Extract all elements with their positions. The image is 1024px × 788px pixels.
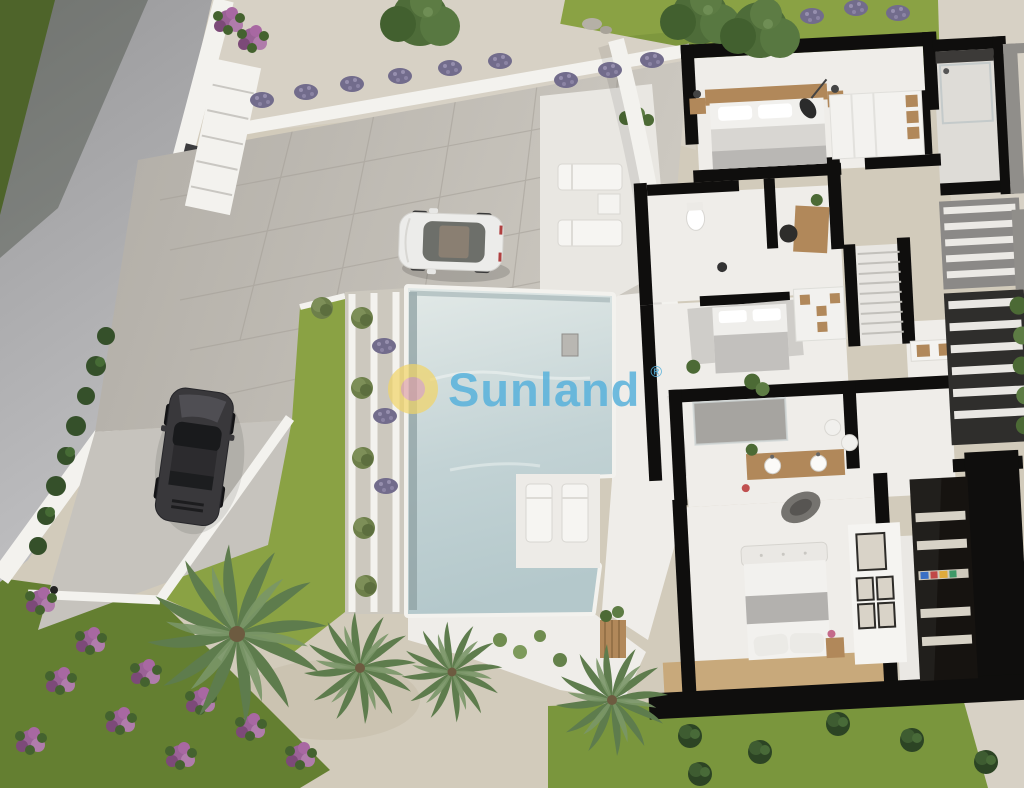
side-table [598,194,620,214]
olive-shrub [311,297,333,319]
car-mirror [427,269,436,274]
car-mirror [161,425,170,432]
open-shelf [916,344,930,357]
shower-pan [693,398,787,445]
walk-in-closet [910,477,978,682]
lavender-bush [438,60,462,76]
watermark-brand-text: Sunland [448,366,640,413]
outdoor-shower-panel [562,334,578,356]
white-car [398,207,512,284]
wardrobe-cubby [905,95,918,108]
stool [824,419,841,436]
sun-lounger [558,164,622,190]
lavender-bush [886,5,910,21]
lavender-bush [294,84,318,100]
rock [600,26,612,34]
render-canvas: Sunland ® [0,0,1024,788]
picture-frame [878,603,895,628]
pool-lounger-platform [516,474,600,568]
book [920,572,928,579]
picture-frame [877,577,894,600]
book [939,571,947,578]
shelf-cubby [830,293,841,304]
shelf-cubby [816,306,827,317]
wardrobe-cubby [906,111,919,124]
olive-shrub [352,447,374,469]
book [949,570,956,577]
lavender-bush [372,338,396,354]
pillow [753,633,789,657]
sink [764,457,781,474]
bedside-box [826,637,845,658]
lavender-bush [340,76,364,92]
sink [810,455,827,472]
pillow [758,103,793,119]
sunland-watermark: Sunland ® [388,364,662,414]
pillow [790,633,824,653]
car-sunroof [438,225,469,258]
vanity [746,449,845,480]
wardrobe-cubby [907,127,920,140]
lavender-bush [800,8,824,24]
lavender-bush [250,92,274,108]
wooden-planter [600,606,626,658]
sun-lounger [558,220,622,246]
lavender-bush [640,52,664,68]
stool [841,434,858,451]
car-mirror [226,434,235,441]
lavender-bush [374,478,398,494]
nightstand [689,98,706,115]
car-mirror [429,208,438,213]
shelf-cubby [817,322,828,333]
wall-lamp [50,586,58,594]
pillow [752,308,781,321]
pillow [718,105,753,121]
bed-throw [745,592,828,624]
shelf-cubby [800,295,811,306]
picture-frame [857,578,874,601]
sun-lounger [562,484,588,542]
louver-panels [939,197,1024,445]
olive-shrub [351,377,373,399]
lavender-bush [488,53,512,69]
olive-shrub [353,517,375,539]
lavender-bush [554,72,578,88]
bed-duvet [714,332,790,374]
olive-shrub [355,575,377,597]
toilet-tank [687,202,703,211]
desk [793,206,829,254]
pillow [718,310,747,323]
sun-lounger [526,484,552,542]
rock [582,18,602,30]
lavender-bush [844,0,868,16]
registered-trademark-symbol: ® [650,364,662,382]
olive-shrub [351,307,373,329]
book [930,571,937,578]
taillight [499,225,502,234]
lavender-bush [388,68,412,84]
picture-frame [858,604,875,629]
taillight [498,252,501,261]
lavender-bush [598,62,622,78]
picture-frame [856,533,886,570]
sunland-logo-icon [388,364,438,414]
